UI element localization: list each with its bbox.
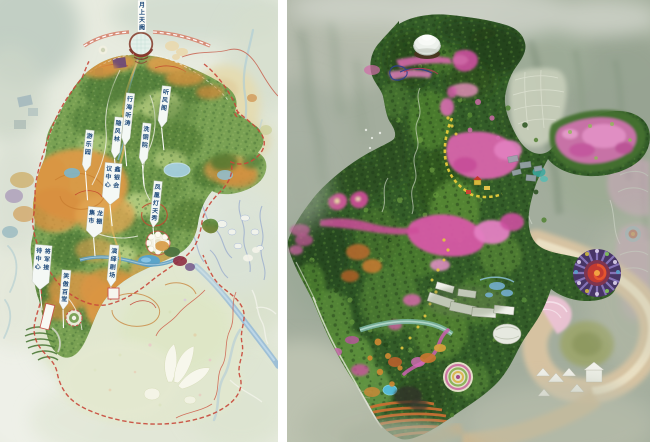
svg-text:上: 上 [139, 9, 145, 17]
svg-text:月: 月 [138, 1, 145, 9]
svg-text:天: 天 [152, 208, 159, 216]
svg-text:阙: 阙 [139, 24, 145, 32]
svg-text:天: 天 [139, 17, 145, 24]
